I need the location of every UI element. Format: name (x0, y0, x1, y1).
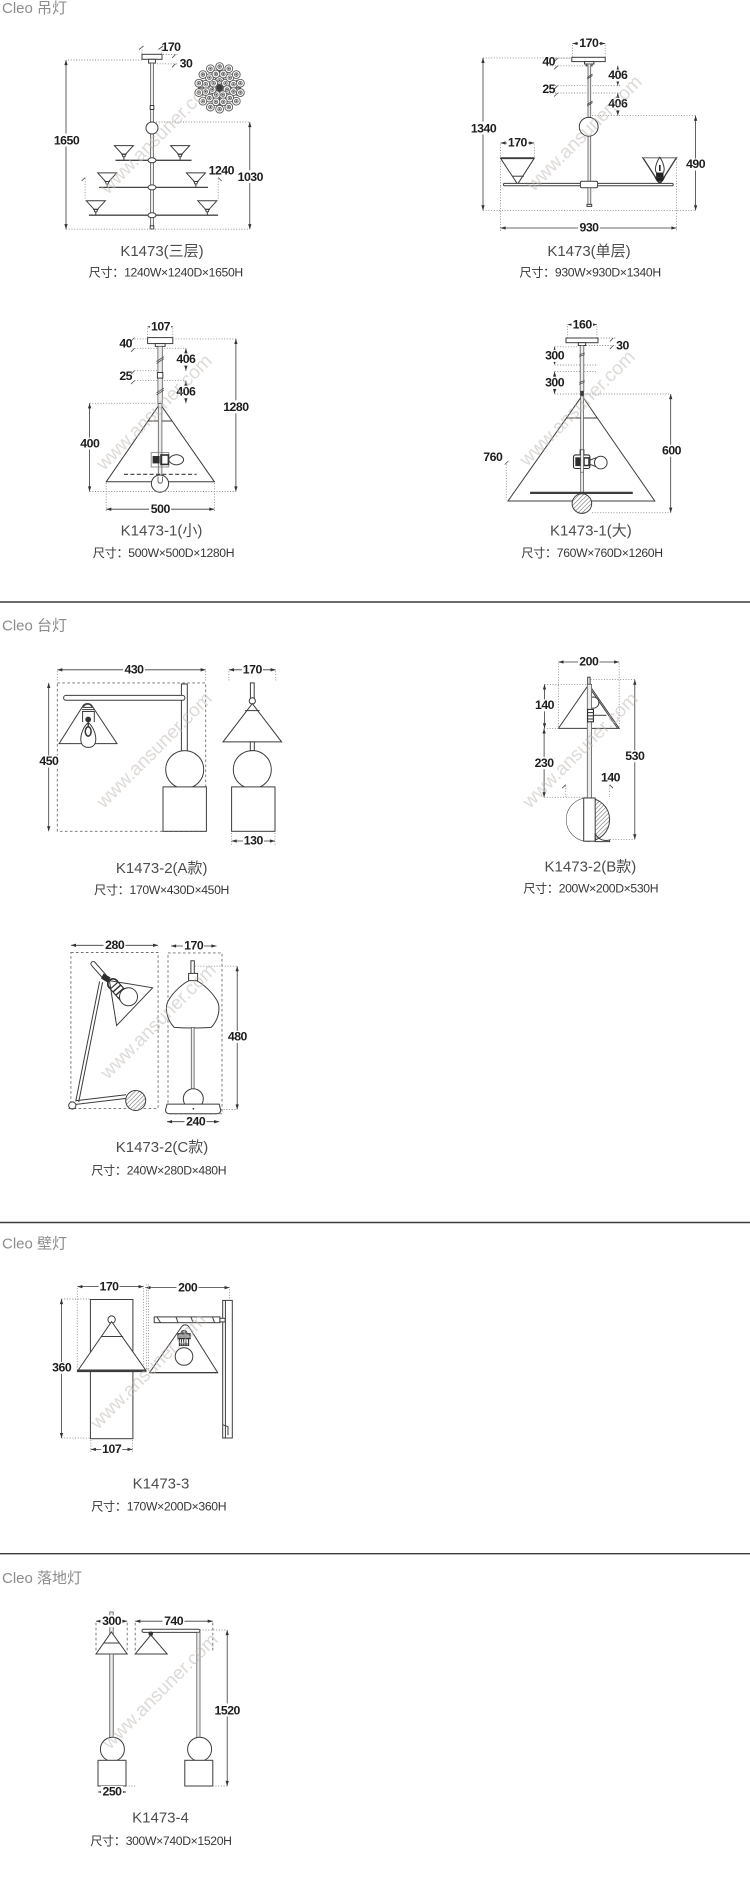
svg-text:300: 300 (545, 376, 565, 390)
svg-text:25: 25 (542, 82, 555, 96)
svg-text:170: 170 (508, 136, 528, 150)
svg-text:450: 450 (39, 754, 59, 768)
svg-text:930: 930 (579, 221, 599, 235)
svg-text:300: 300 (102, 1614, 122, 1628)
svg-text:1240: 1240 (209, 164, 235, 178)
svg-text:1340: 1340 (471, 121, 497, 135)
svg-text:Cleo 吊灯: Cleo 吊灯 (2, 0, 67, 17)
svg-text:1520: 1520 (215, 1703, 241, 1717)
svg-text:K1473-3: K1473-3 (133, 1476, 190, 1493)
svg-text:尺寸：1240W×1240D×1650H: 尺寸：1240W×1240D×1650H (89, 266, 243, 280)
svg-text:140: 140 (535, 698, 555, 712)
svg-text:500: 500 (151, 502, 171, 516)
svg-text:K1473-2(B款): K1473-2(B款) (545, 859, 637, 876)
svg-text:130: 130 (244, 834, 264, 848)
svg-text:尺寸：760W×760D×1260H: 尺寸：760W×760D×1260H (521, 546, 662, 560)
svg-text:K1473-1(大): K1473-1(大) (550, 523, 632, 540)
svg-text:160: 160 (573, 317, 593, 331)
svg-text:K1473-4: K1473-4 (132, 1810, 189, 1827)
svg-text:K1473(三层): K1473(三层) (120, 243, 203, 260)
svg-text:490: 490 (686, 157, 706, 171)
svg-text:40: 40 (119, 337, 132, 351)
svg-text:200: 200 (178, 1280, 198, 1294)
svg-text:尺寸：500W×500D×1280H: 尺寸：500W×500D×1280H (93, 546, 234, 560)
svg-text:430: 430 (124, 663, 144, 677)
svg-text:40: 40 (542, 55, 555, 69)
svg-text:600: 600 (662, 443, 682, 457)
svg-text:170: 170 (161, 40, 181, 54)
svg-text:107: 107 (102, 1442, 122, 1456)
svg-text:K1473(单层): K1473(单层) (547, 243, 630, 260)
svg-text:760: 760 (483, 450, 503, 464)
svg-text:尺寸：240W×280D×480H: 尺寸：240W×280D×480H (91, 1164, 226, 1178)
svg-text:1650: 1650 (54, 133, 80, 147)
svg-text:www.ansuner.com: www.ansuner.com (522, 72, 647, 197)
svg-text:170: 170 (99, 1279, 119, 1293)
svg-text:Cleo 壁灯: Cleo 壁灯 (2, 1236, 67, 1253)
svg-text:740: 740 (164, 1614, 184, 1628)
svg-text:140: 140 (601, 771, 621, 785)
svg-text:K1473-2(A款): K1473-2(A款) (116, 860, 208, 877)
svg-text:1030: 1030 (238, 170, 264, 184)
svg-text:240: 240 (186, 1114, 206, 1128)
svg-text:www.ansuner.com: www.ansuner.com (96, 75, 221, 200)
svg-text:480: 480 (228, 1030, 248, 1044)
svg-text:K1473-2(C款): K1473-2(C款) (116, 1139, 209, 1156)
svg-text:170: 170 (184, 939, 204, 953)
svg-text:200: 200 (579, 655, 599, 669)
svg-text:K1473-1(小): K1473-1(小) (121, 523, 203, 540)
svg-text:尺寸：200W×200D×530H: 尺寸：200W×200D×530H (523, 882, 658, 896)
svg-text:360: 360 (52, 1361, 72, 1375)
svg-text:170: 170 (579, 36, 599, 50)
svg-text:170: 170 (243, 663, 263, 677)
svg-text:尺寸：300W×740D×1520H: 尺寸：300W×740D×1520H (90, 1834, 231, 1848)
svg-text:300: 300 (545, 349, 565, 363)
svg-text:1280: 1280 (223, 400, 249, 414)
svg-text:Cleo 落地灯: Cleo 落地灯 (2, 1570, 82, 1587)
svg-text:30: 30 (180, 57, 193, 71)
svg-text:400: 400 (80, 436, 100, 450)
svg-text:530: 530 (625, 749, 645, 763)
svg-text:250: 250 (102, 1785, 122, 1799)
svg-text:尺寸：170W×430D×450H: 尺寸：170W×430D×450H (94, 883, 229, 897)
svg-text:107: 107 (151, 320, 171, 334)
svg-text:Cleo 台灯: Cleo 台灯 (2, 618, 67, 635)
svg-text:尺寸：170W×200D×360H: 尺寸：170W×200D×360H (91, 1500, 226, 1514)
svg-text:280: 280 (105, 938, 125, 952)
svg-text:25: 25 (119, 369, 132, 383)
svg-text:尺寸：930W×930D×1340H: 尺寸：930W×930D×1340H (519, 266, 660, 280)
